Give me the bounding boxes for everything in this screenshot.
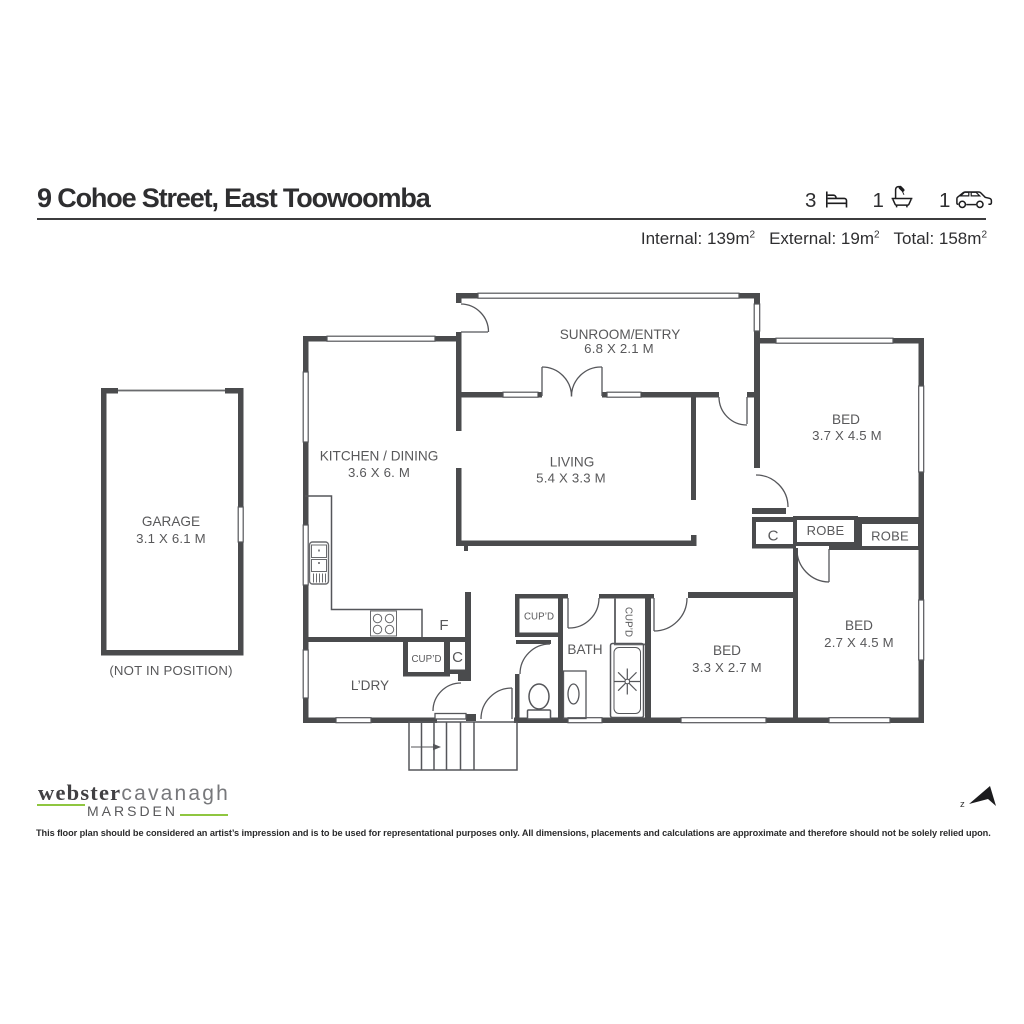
- svg-text:3.7 X 4.5 M: 3.7 X 4.5 M: [812, 428, 882, 443]
- svg-text:2.7 X 4.5 M: 2.7 X 4.5 M: [824, 635, 894, 650]
- svg-text:ROBE: ROBE: [807, 523, 845, 538]
- svg-text:C: C: [452, 649, 463, 666]
- svg-text:L’DRY: L’DRY: [351, 678, 389, 693]
- svg-text:5.4 X 3.3 M: 5.4 X 3.3 M: [536, 471, 606, 486]
- svg-text:F: F: [439, 617, 448, 634]
- svg-text:SUNROOM/ENTRY: SUNROOM/ENTRY: [560, 327, 681, 342]
- svg-text:BED: BED: [845, 618, 873, 633]
- svg-text:3.6 X 6. M: 3.6 X 6. M: [348, 465, 410, 480]
- svg-text:CUP’D: CUP’D: [623, 607, 634, 637]
- svg-text:3.3 X 2.7 M: 3.3 X 2.7 M: [692, 660, 762, 675]
- svg-text:3.1 X 6.1 M: 3.1 X 6.1 M: [136, 531, 206, 546]
- svg-text:6.8 X 2.1 M: 6.8 X 2.1 M: [584, 341, 654, 356]
- svg-text:LIVING: LIVING: [550, 454, 595, 469]
- svg-text:BATH: BATH: [567, 642, 602, 657]
- svg-text:(NOT IN POSITION): (NOT IN POSITION): [109, 663, 232, 678]
- svg-text:BED: BED: [832, 412, 860, 427]
- svg-text:GARAGE: GARAGE: [142, 514, 200, 529]
- svg-text:BED: BED: [713, 643, 741, 658]
- svg-text:C: C: [768, 528, 779, 545]
- svg-text:CUP’D: CUP’D: [524, 612, 554, 623]
- svg-text:ROBE: ROBE: [871, 529, 909, 544]
- svg-text:CUP’D: CUP’D: [411, 654, 441, 665]
- svg-text:z: z: [960, 799, 965, 810]
- svg-text:KITCHEN / DINING: KITCHEN / DINING: [320, 449, 439, 464]
